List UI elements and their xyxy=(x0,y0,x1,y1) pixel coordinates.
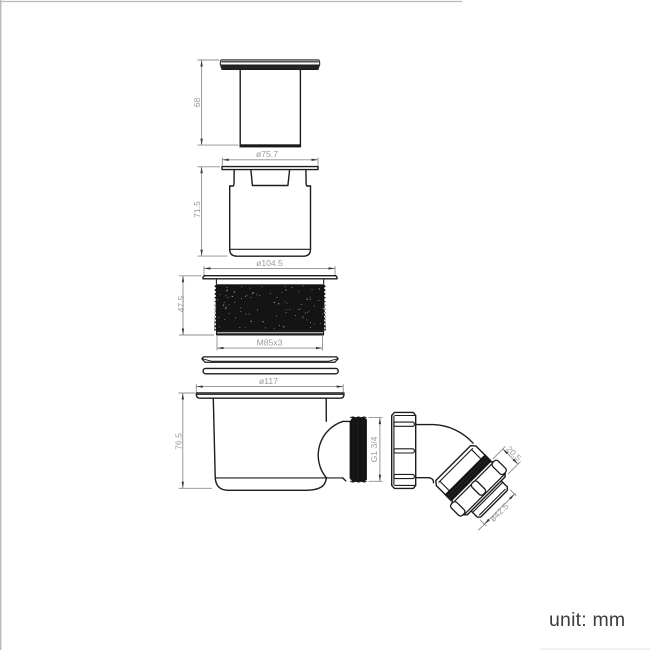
svg-text:68: 68 xyxy=(192,98,202,108)
svg-text:G1 3/4: G1 3/4 xyxy=(369,436,379,462)
svg-text:ø117: ø117 xyxy=(259,376,278,386)
svg-text:M85x3: M85x3 xyxy=(257,338,283,348)
svg-text:71.5: 71.5 xyxy=(192,201,202,218)
svg-text:76.5: 76.5 xyxy=(173,433,183,450)
svg-text:47.5: 47.5 xyxy=(176,295,186,312)
svg-text:ø75.7: ø75.7 xyxy=(256,149,278,159)
svg-text:ø104.5: ø104.5 xyxy=(256,258,283,268)
